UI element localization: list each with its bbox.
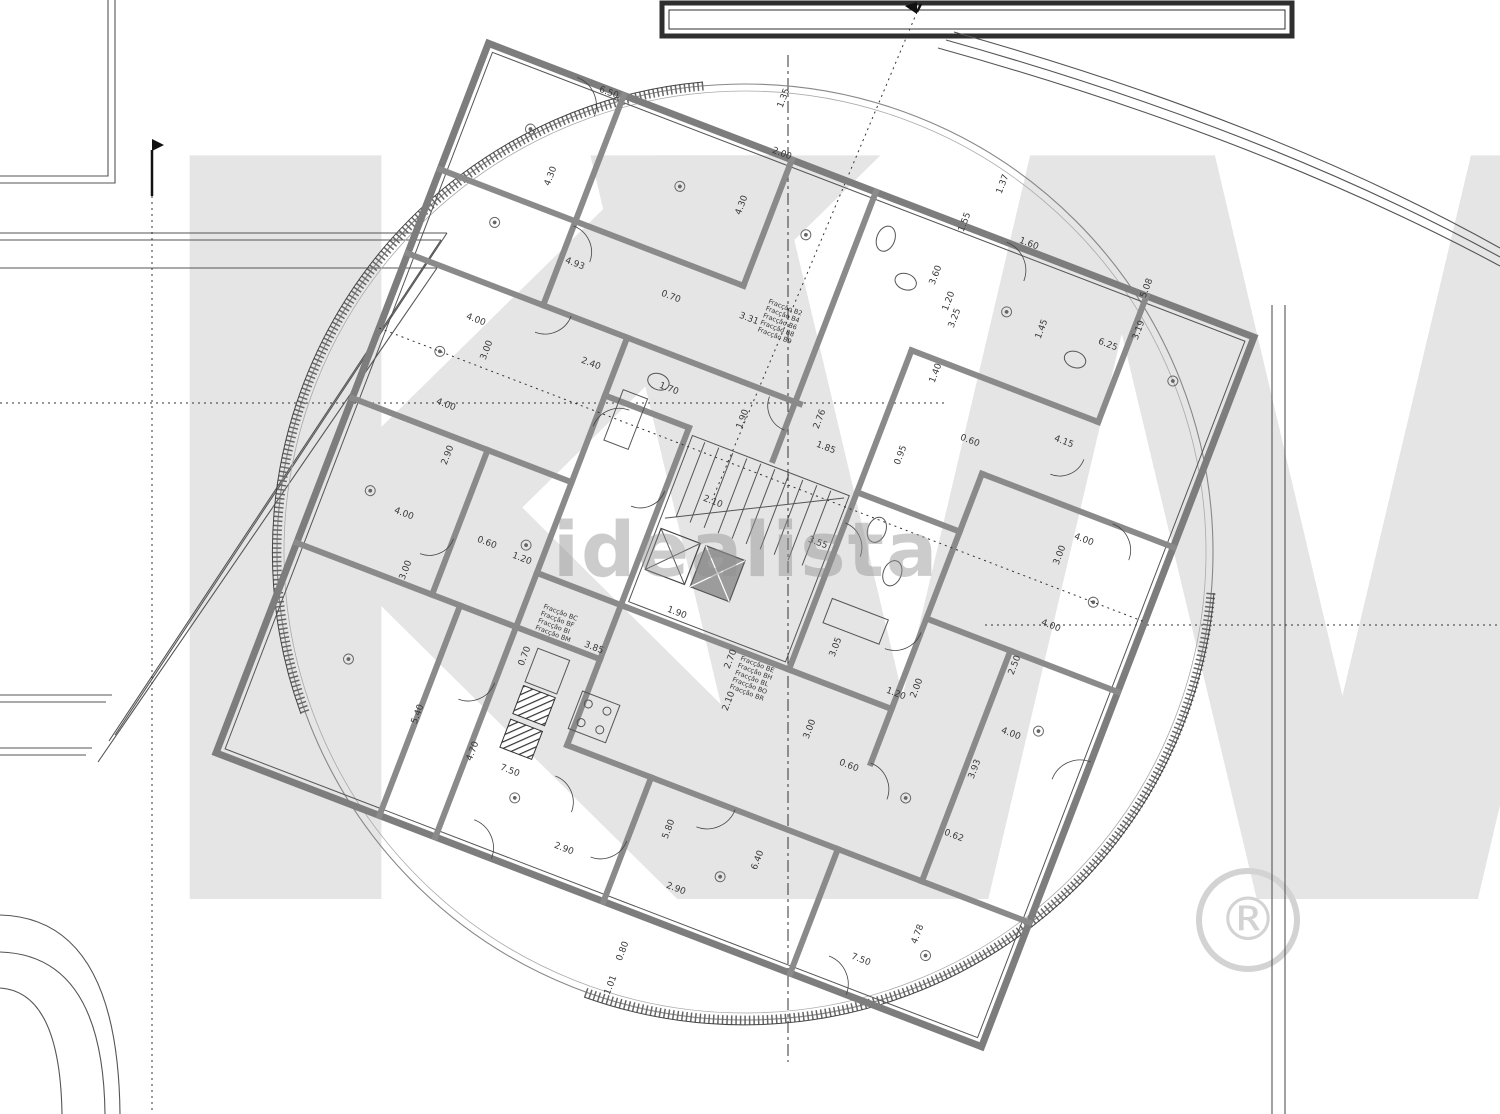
- dimension-label: 2.76: [812, 408, 829, 431]
- dimension-label: 2.40: [580, 356, 603, 373]
- dimension-label: 1.90: [735, 408, 752, 431]
- dimension-label: 1.35: [776, 87, 793, 109]
- dimension-label: 0.70: [660, 289, 683, 306]
- dimension-label: 3.00: [1052, 544, 1069, 567]
- dimension-label: 4.70: [465, 740, 482, 763]
- dimension-label: 6.25: [1097, 337, 1119, 354]
- dimension-label: 2.90: [665, 881, 688, 898]
- dimension-label: 1.37: [995, 173, 1012, 195]
- dimension-label: 1.70: [658, 381, 681, 398]
- dimension-label: 4.78: [910, 923, 927, 946]
- dimension-label: 3.00: [802, 718, 819, 741]
- dimension-label: 2.00: [909, 677, 926, 700]
- axis-marker-icon: [152, 139, 164, 196]
- dimension-label: 1.01: [603, 974, 620, 996]
- dimension-label: 0.60: [838, 758, 861, 775]
- dimension-label: 6.40: [750, 849, 767, 872]
- dimension-label: 2.90: [553, 841, 576, 858]
- dimension-label: 4.30: [543, 165, 560, 188]
- fraction-label-block: Fracção B2Fracção B4Fracção B6Fracção B8…: [757, 297, 804, 345]
- dimension-label: 3.00: [479, 339, 496, 362]
- floor-plan-canvas: K W ®: [0, 0, 1500, 1114]
- dimension-label: 4.00: [1040, 618, 1063, 635]
- dimension-label: 1.20: [511, 551, 534, 568]
- dimension-label: 4.15: [1053, 434, 1075, 451]
- dimension-label: 2.10: [721, 690, 738, 713]
- dimension-label: 4.00: [393, 506, 416, 523]
- dimension-label: 0.70: [517, 645, 534, 668]
- dimension-label: 4.00: [1000, 726, 1023, 743]
- dimension-label: 0.80: [615, 940, 632, 963]
- dimension-label: 4.00: [435, 397, 458, 414]
- bathroom-fixtures: [571, 158, 1106, 677]
- dimension-label: 2.90: [440, 444, 457, 467]
- dimension-label: 7.50: [499, 763, 522, 780]
- dimension-label: 0.95: [893, 444, 910, 466]
- dimension-label: 3.31: [738, 311, 760, 328]
- idealista-watermark: idealista: [553, 512, 939, 588]
- dimension-label: 5.80: [661, 818, 678, 841]
- dimension-label: 4.00: [465, 312, 488, 329]
- dimension-label: 1.90: [666, 605, 689, 622]
- dimension-label: 0.60: [476, 535, 499, 552]
- dimension-label: 4.00: [1073, 532, 1096, 549]
- dimension-label: 7.50: [850, 952, 873, 969]
- dimension-label: 1.85: [815, 440, 837, 457]
- dimension-label: 4.30: [734, 194, 751, 217]
- dimension-label: 3.05: [828, 636, 845, 658]
- dimension-label: 1.40: [928, 362, 945, 385]
- dimension-label: 0.60: [959, 433, 982, 450]
- dimension-label: 4.93: [564, 256, 586, 273]
- dimension-label: 6.50: [598, 85, 621, 102]
- dimension-label: 0.62: [943, 828, 965, 845]
- dimension-label: 5.40: [410, 703, 427, 726]
- dimension-label: 3.60: [928, 264, 945, 287]
- dimension-label: 3.00: [398, 559, 415, 582]
- dimension-label: 1.45: [1034, 318, 1051, 340]
